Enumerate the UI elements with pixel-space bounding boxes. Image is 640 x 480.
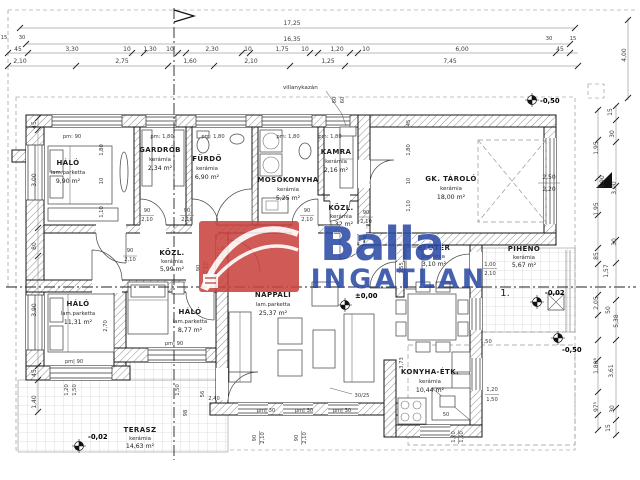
room-floor: kerámia — [277, 186, 299, 193]
dim-label: 1,20 — [330, 46, 344, 53]
dim-label: 30 — [19, 35, 26, 41]
dim-label: 5,38 — [613, 314, 620, 328]
room-area: 6,90 m² — [195, 174, 220, 181]
wardrobe-shelf — [174, 130, 184, 186]
floor-plan-page: 17,25 16,35 45 3,30 10 1,30 10 2,30 10 1… — [0, 0, 640, 480]
pm-label: pm: 1,80 — [276, 134, 299, 140]
pm-label: pm| 30 — [295, 408, 313, 414]
armchair — [278, 350, 302, 376]
room-name: GK. TÁROLÓ — [425, 174, 476, 183]
door-size: 90 — [294, 435, 300, 442]
toilet — [299, 143, 311, 159]
electric-boiler — [340, 127, 356, 136]
logo-tile — [203, 274, 218, 288]
room-floor: kerámia — [129, 435, 151, 442]
dim-label: 98 — [183, 410, 189, 417]
dim-label: 3,90 — [599, 175, 606, 189]
dim-label: 1,80 — [406, 144, 412, 156]
dim-label: 1,20 — [486, 387, 498, 393]
dim-label: 50 — [605, 306, 612, 314]
dim-label: 60 — [340, 97, 346, 104]
door-size: 2,10 — [124, 257, 136, 263]
dim-label: 10 — [301, 46, 309, 53]
level-value: -0,02 — [545, 289, 565, 297]
floor-plan-drawing: 17,25 16,35 45 3,30 10 1,30 10 2,30 10 1… — [0, 0, 640, 480]
dim-label: 3,30 — [65, 46, 79, 53]
dim-label: 2,50 — [542, 174, 556, 181]
coffee-table — [313, 330, 335, 368]
room-floor: kerámia — [325, 158, 347, 165]
dim-label: 3,00 — [611, 181, 618, 195]
room-area: 8,77 m² — [178, 327, 203, 334]
dining-table — [408, 294, 456, 340]
washbasin — [230, 134, 244, 144]
dim-label: 1,50 — [175, 384, 181, 396]
terrace-tiles — [130, 362, 228, 380]
dim-label: 2,70 — [103, 320, 109, 332]
level-value: -0,50 — [562, 346, 582, 354]
dim-label: 16,35 — [283, 36, 300, 43]
dim-label: 10 — [99, 178, 105, 185]
dim-label: 1,80 — [99, 144, 105, 156]
room-floor: lam.parketta — [173, 319, 207, 325]
dim-label: 50 — [443, 412, 450, 418]
room-name: PIHENŐ — [508, 244, 541, 253]
dim-label: 10 — [362, 46, 370, 53]
dim-label: 3,90 — [31, 303, 38, 317]
room-floor: lam.parketta — [61, 311, 95, 317]
room-name: FÜRDŐ — [192, 154, 222, 163]
room-name: HÁLÓ — [56, 158, 79, 167]
dim-label: 1,20 — [64, 384, 70, 396]
dim-label: 30 — [609, 405, 616, 413]
room-name: HÁLÓ — [66, 299, 89, 308]
dim-label: 2,30 — [205, 46, 219, 53]
dim-label: 10 — [406, 178, 412, 185]
room-name: KONYHA-ÉTK. — [401, 367, 459, 376]
pm-label: pm: 1,80 — [201, 134, 224, 140]
dryer — [260, 154, 282, 176]
dim-label: 1,95 — [593, 202, 600, 216]
dim-label: 1,80⁶ — [593, 358, 600, 374]
section-flag — [174, 10, 194, 22]
room-floor: kerámia — [440, 185, 462, 192]
dim-label: 30 — [611, 238, 618, 246]
dim-label: 10 — [166, 46, 174, 53]
dim-label: 3,00 — [31, 173, 38, 187]
door-size: 2,10 — [301, 217, 313, 223]
room-floor: kerámia — [149, 156, 171, 163]
dim-label: 45 — [556, 46, 564, 53]
room-area: 25,37 m² — [259, 310, 288, 317]
room-kozl: KÖZL. kerámia 5,99 m² — [159, 248, 184, 273]
dim-label: 1,50 — [480, 339, 492, 345]
dim-label: 15 — [605, 424, 612, 432]
kitchen-sink — [440, 396, 455, 407]
level-value: -0,50 — [540, 97, 560, 105]
room-area: 2,16 m² — [324, 167, 349, 174]
room-gk-tarolo: GK. TÁROLÓ kerámia 18,00 m² — [425, 174, 476, 201]
dim-label: 2,75 — [115, 58, 129, 65]
dim-label: 60 — [332, 97, 338, 104]
pm-label: pm: 1,80 — [150, 134, 173, 140]
dim-label: 1,50 — [486, 397, 498, 403]
dim-label: 6,00 — [455, 46, 469, 53]
dim-label: 1,95 — [593, 141, 600, 155]
dim-label: 2,10 — [13, 58, 27, 65]
room-area: 11,31 m² — [64, 319, 93, 326]
room-floor: lam.parketta — [51, 170, 85, 176]
dim-label: 1,20 — [451, 431, 457, 443]
pm-label: pm: 90 — [63, 134, 81, 140]
room-floor: kerámia — [196, 165, 218, 172]
dim-label: 56 — [200, 391, 206, 398]
room-name: HÁLÓ — [178, 307, 201, 316]
pm-label: pm| 90 — [165, 341, 183, 347]
dim-label: 45 — [31, 369, 38, 377]
room-name: NAPPALI — [255, 291, 291, 299]
door-size: 90 — [144, 208, 151, 214]
room-floor: kerámia — [513, 254, 535, 261]
room-floor: kerámia — [419, 378, 441, 385]
room-furdo: FÜRDŐ kerámia 6,90 m² — [192, 154, 222, 181]
garage-cross — [478, 140, 546, 222]
dim-label: 2,10 — [244, 58, 258, 65]
dim-label: 10 — [123, 46, 131, 53]
dim-label: 85 — [593, 252, 600, 260]
dim-label: 1,60 — [183, 58, 197, 65]
dim-label: 1,10 — [99, 206, 105, 218]
logo-brand-text: Balla — [320, 217, 444, 271]
pm-label: pm| 90 — [65, 359, 83, 365]
dim-label: 2,05 — [593, 296, 600, 310]
dim-label: 3,61 — [608, 364, 615, 378]
dim-label: 10 — [244, 46, 252, 53]
dim-label: 4,00 — [621, 48, 628, 62]
room-area: 10,44 m² — [416, 387, 445, 394]
room-nappali: NAPPALI lam.parketta 25,37 m² — [255, 291, 291, 317]
boiler-label: villanykazán — [283, 84, 318, 91]
dim-label: 1,25 — [321, 58, 335, 65]
dim-label: 45 — [406, 120, 412, 127]
dim-label: 1,10 — [406, 200, 412, 212]
door-size: 90 — [184, 208, 191, 214]
bathtub — [216, 189, 252, 225]
room-name: KAMRA — [321, 148, 352, 156]
room-area: 9,90 m² — [56, 178, 81, 185]
room-name: TERASZ — [124, 426, 157, 434]
room-floor: kerámia — [161, 258, 183, 265]
room-area: 5,67 m² — [512, 262, 537, 269]
terrace-tiles — [18, 380, 228, 452]
room-area: 14,63 m² — [126, 443, 155, 450]
door-size: 90 — [363, 210, 370, 216]
dim-label: 45 — [14, 46, 22, 53]
door-size: 2,10 — [181, 217, 193, 223]
pm-label: pm| 30 — [257, 408, 275, 414]
door-size: 2,10 — [302, 432, 308, 444]
pm-label: pm: 1,80 — [318, 134, 341, 140]
door-size: 90 — [252, 435, 258, 442]
logo-sub-text: INGATLAN — [311, 264, 488, 295]
pm-label: pm| 30 — [333, 408, 351, 414]
door-size: 90 — [304, 208, 311, 214]
room-area: 2,34 m² — [148, 165, 173, 172]
room-area: 18,00 m² — [437, 194, 466, 201]
room-name: GARDRÓB — [139, 145, 181, 154]
dim-label: 2,20 — [542, 186, 556, 193]
room-kamra: KAMRA kerámia 2,16 m² — [321, 148, 352, 174]
room-area: 5,25 m² — [276, 195, 301, 202]
sofa — [344, 314, 374, 382]
level-value: -0,02 — [88, 433, 108, 441]
dim-label: 1,40 — [31, 395, 38, 409]
room-name: KÖZL. — [328, 203, 353, 212]
dim-label: 17,25 — [283, 20, 300, 27]
dim-label: 1,57 — [603, 264, 610, 278]
blind-label: 30/25 — [355, 393, 370, 399]
dim-label: 1,75 — [275, 46, 289, 53]
dim-label: 1,50 — [459, 431, 465, 443]
door-size: 90 — [127, 248, 134, 254]
dim-label: 97⁵ — [593, 401, 600, 412]
dim-label: 2,40 — [208, 396, 220, 402]
dresser — [48, 208, 118, 221]
dim-label: 15 — [570, 36, 577, 42]
dim-label: 80 — [31, 242, 38, 250]
dim-label: 30 — [609, 130, 616, 138]
dim-label: 15 — [607, 108, 614, 116]
door-size: 2,10 — [141, 217, 153, 223]
dim-label: 1,50 — [72, 384, 78, 396]
mirror — [120, 152, 128, 192]
dim-label: 7,45 — [443, 58, 457, 65]
armchair — [278, 318, 302, 344]
room-name: KÖZL. — [159, 248, 184, 257]
room-floor: lam.parketta — [256, 302, 290, 308]
dim-label: 15 — [1, 35, 8, 41]
dim-label: 1,30 — [143, 46, 157, 53]
room-halo3: HÁLÓ lam.parketta 8,77 m² — [173, 307, 207, 334]
door-size: 2,10 — [260, 432, 266, 444]
room-name: MOSÓKONYHA — [257, 175, 318, 184]
dim-label: 45 — [31, 121, 38, 129]
dim-label: 30 — [546, 36, 553, 42]
room-area: 5,99 m² — [160, 266, 185, 273]
mark-one: 1. — [500, 288, 510, 299]
